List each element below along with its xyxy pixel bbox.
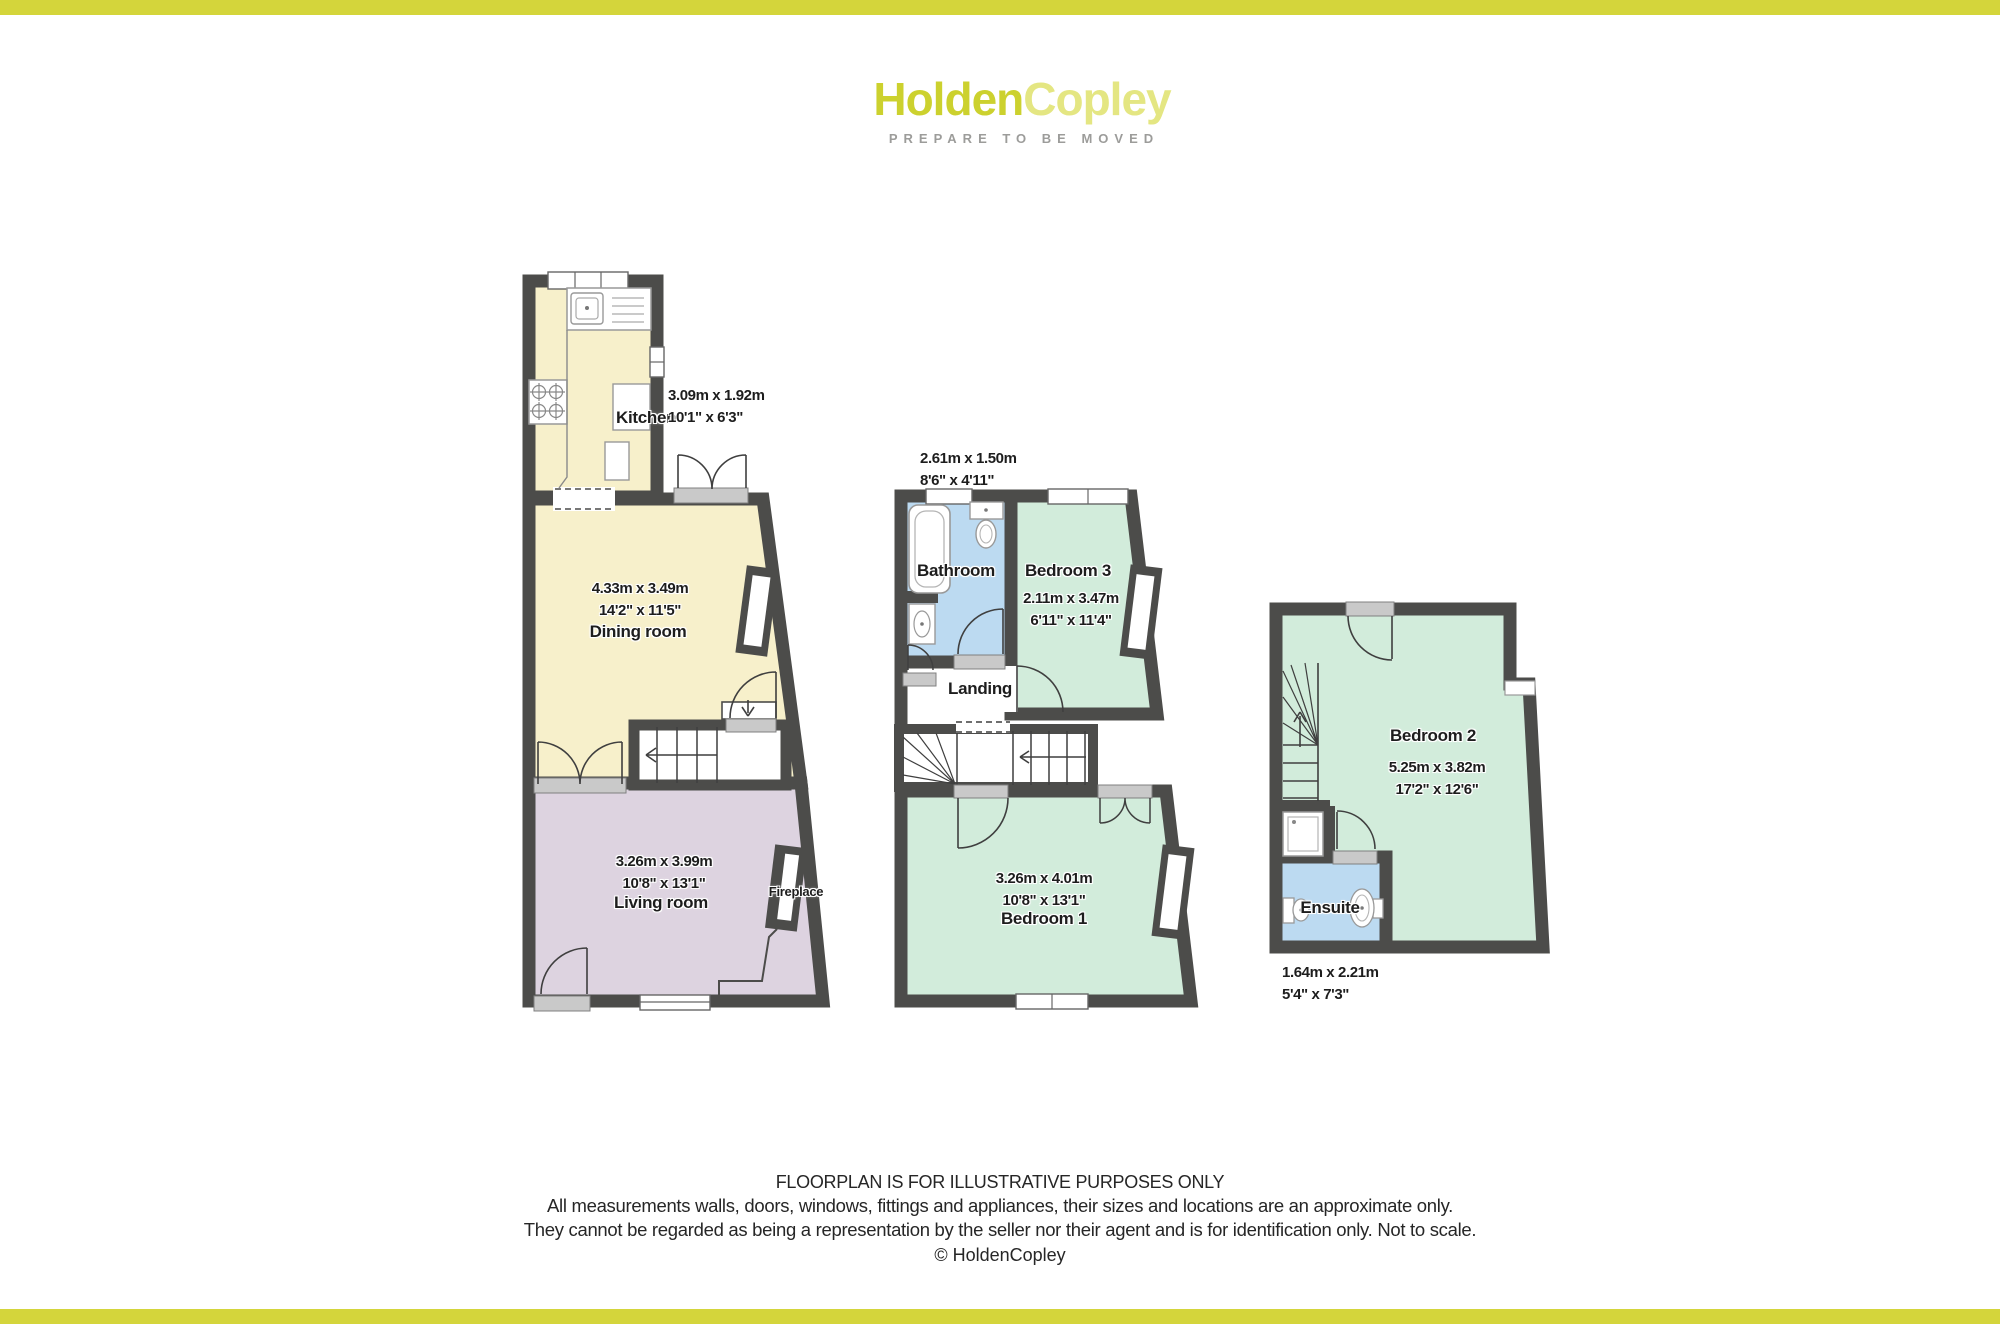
floorplan-page: HoldenCopley PREPARE TO BE MOVED <box>0 0 2000 1324</box>
disclaimer: FLOORPLAN IS FOR ILLUSTRATIVE PURPOSES O… <box>0 1170 2000 1268</box>
kitchen-opening <box>553 487 615 511</box>
kitchen-top-window-icon <box>548 272 628 289</box>
disclaimer-line2: All measurements walls, doors, windows, … <box>0 1194 2000 1218</box>
floorplan-drawing <box>0 0 2000 1324</box>
ensuite-dims-imperial: 5'4" x 7'3" <box>1282 984 1379 1006</box>
living-label: Living room <box>614 893 708 913</box>
disclaimer-title: FLOORPLAN IS FOR ILLUSTRATIVE PURPOSES O… <box>0 1170 2000 1194</box>
kitchen-dims-metric: 3.09m x 1.92m <box>668 385 765 407</box>
bathroom-dims: 2.61m x 1.50m 8'6" x 4'11" <box>920 448 1017 492</box>
bedroom2-dims-imperial: 17'2" x 12'6" <box>1389 779 1486 801</box>
bedroom3-dims-imperial: 6'11" x 11'4" <box>1023 610 1119 632</box>
bedroom3-label: Bedroom 3 <box>1025 561 1111 581</box>
bedroom3-top-window-icon <box>1048 489 1128 504</box>
first-stairs-icon <box>899 729 1093 787</box>
shower-icon <box>1283 812 1323 856</box>
bedroom3-dims: 2.11m x 3.47m 6'11" x 11'4" <box>1023 588 1119 632</box>
landing-dashed-opening <box>956 721 1010 733</box>
living-dims: 3.26m x 3.99m 10'8" x 13'1" <box>616 851 713 895</box>
wall-notch-window-icon <box>1505 681 1535 695</box>
bedroom3-dims-metric: 2.11m x 3.47m <box>1023 588 1119 610</box>
ensuite-label: Ensuite <box>1300 898 1359 918</box>
living-window-icon <box>640 995 710 1010</box>
bathroom-dims-metric: 2.61m x 1.50m <box>920 448 1017 470</box>
basin-icon <box>909 604 935 644</box>
kitchen-dims-imperial: 10'1" x 6'3" <box>668 407 765 429</box>
bedroom2-label: Bedroom 2 <box>1390 726 1476 746</box>
sink-unit-icon <box>567 288 651 330</box>
bedroom1-dims-metric: 3.26m x 4.01m <box>996 868 1093 890</box>
dining-dims: 4.33m x 3.49m 14'2" x 11'5" <box>592 578 689 622</box>
bedroom2-dims: 5.25m x 3.82m 17'2" x 12'6" <box>1389 757 1486 801</box>
french-doors-icon <box>674 455 748 503</box>
copyright: © HoldenCopley <box>0 1242 2000 1268</box>
bathroom-label: Bathroom <box>917 561 995 581</box>
appliance2-icon <box>605 442 629 480</box>
dining-label: Dining room <box>590 622 687 642</box>
bedroom1-label: Bedroom 1 <box>1001 909 1087 929</box>
bottom-accent-bar <box>0 1309 2000 1324</box>
fireplace-label: Fireplace <box>769 884 823 899</box>
disclaimer-line3: They cannot be regarded as being a repre… <box>0 1218 2000 1242</box>
dining-dims-metric: 4.33m x 3.49m <box>592 578 689 600</box>
ensuite-dims: 1.64m x 2.21m 5'4" x 7'3" <box>1282 962 1379 1006</box>
bedroom2-dims-metric: 5.25m x 3.82m <box>1389 757 1486 779</box>
bedroom1-bottom-window-icon <box>1016 994 1088 1009</box>
ground-stairs-icon <box>634 725 786 785</box>
living-dims-metric: 3.26m x 3.99m <box>616 851 713 873</box>
landing-label: Landing <box>948 679 1012 699</box>
kitchen-dims: 3.09m x 1.92m 10'1" x 6'3" <box>668 385 765 429</box>
bedroom1-dims: 3.26m x 4.01m 10'8" x 13'1" <box>996 868 1093 912</box>
living-dims-imperial: 10'8" x 13'1" <box>616 873 713 895</box>
bathroom-dims-imperial: 8'6" x 4'11" <box>920 470 1017 492</box>
kitchen-side-window-icon <box>650 347 664 377</box>
hob-icon <box>529 380 567 424</box>
dining-dims-imperial: 14'2" x 11'5" <box>592 600 689 622</box>
ensuite-dims-metric: 1.64m x 2.21m <box>1282 962 1379 984</box>
